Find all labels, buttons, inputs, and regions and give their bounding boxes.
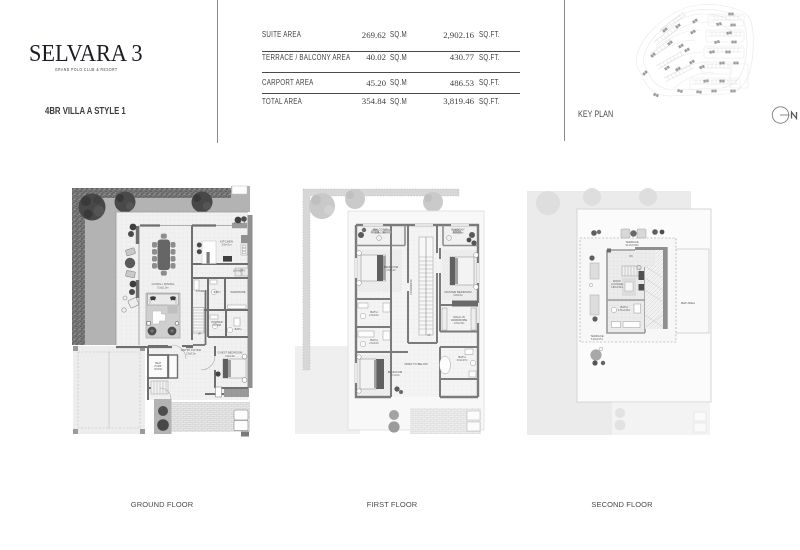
svg-text:3.95x3.92m: 3.95x3.92m <box>611 287 623 289</box>
svg-text:ROOM: ROOM <box>213 324 221 327</box>
svg-text:MEP AREA: MEP AREA <box>681 301 695 305</box>
svg-text:BATH: BATH <box>458 355 465 359</box>
svg-text:BATH: BATH <box>214 290 221 294</box>
svg-text:BEDROOM: BEDROOM <box>388 370 403 374</box>
svg-text:ENTRY FOYER: ENTRY FOYER <box>181 348 201 352</box>
svg-text:3.6x4.1m: 3.6x4.1m <box>222 244 232 247</box>
svg-text:BATH: BATH <box>620 305 627 309</box>
svg-text:DN: DN <box>629 256 633 258</box>
svg-text:3.67x2.2m: 3.67x2.2m <box>453 233 464 235</box>
svg-text:TERRACE: TERRACE <box>625 240 638 244</box>
svg-text:2.5x5.2m: 2.5x5.2m <box>186 352 196 355</box>
svg-text:LAUNDRY: LAUNDRY <box>233 269 246 273</box>
svg-text:1.87x2.8m: 1.87x2.8m <box>454 323 465 325</box>
svg-text:LIVING / DINING: LIVING / DINING <box>152 282 176 286</box>
svg-text:UP: UP <box>427 335 431 337</box>
svg-text:4.0x5.2m: 4.0x5.2m <box>453 295 463 297</box>
svg-text:LOUNGE: LOUNGE <box>611 282 623 286</box>
svg-text:OPEN TO BELOW: OPEN TO BELOW <box>404 362 428 366</box>
svg-text:BATH: BATH <box>235 327 242 331</box>
svg-text:3.0x4.2m: 3.0x4.2m <box>225 355 235 358</box>
svg-text:BALCONY: BALCONY <box>451 228 465 232</box>
svg-text:CORRIDOR: CORRIDOR <box>409 279 413 294</box>
svg-text:MASTER BEDROOM: MASTER BEDROOM <box>445 290 473 294</box>
svg-text:3.8x4.2m: 3.8x4.2m <box>386 270 396 272</box>
svg-text:BATH: BATH <box>370 310 377 314</box>
svg-text:2.71x2.33m: 2.71x2.33m <box>618 310 630 312</box>
svg-text:2.0x2.6m: 2.0x2.6m <box>369 343 379 345</box>
svg-text:3.0x2.27m: 3.0x2.27m <box>457 360 468 362</box>
svg-text:ROOM: ROOM <box>154 368 161 371</box>
svg-text:WARDROBE: WARDROBE <box>230 290 245 294</box>
svg-text:TERRACE: TERRACE <box>590 334 603 338</box>
svg-text:3.7x4.0m: 3.7x4.0m <box>390 375 400 377</box>
svg-text:5.43x2.07m: 5.43x2.07m <box>591 339 603 341</box>
svg-text:10.47x6.35m: 10.47x6.35m <box>625 245 638 247</box>
svg-text:BEDROOM: BEDROOM <box>384 265 399 269</box>
svg-text:STORE: STORE <box>196 290 205 293</box>
svg-text:3.95x2.0m: 3.95x2.0m <box>375 233 386 235</box>
svg-text:5.5x11.0m: 5.5x11.0m <box>158 286 169 289</box>
svg-text:BATH: BATH <box>370 338 377 342</box>
svg-text:UP: UP <box>198 333 202 336</box>
svg-text:2.0x2.6m: 2.0x2.6m <box>369 315 379 317</box>
svg-text:BALCONY: BALCONY <box>373 228 387 232</box>
svg-text:WARDROBE: WARDROBE <box>451 318 468 322</box>
